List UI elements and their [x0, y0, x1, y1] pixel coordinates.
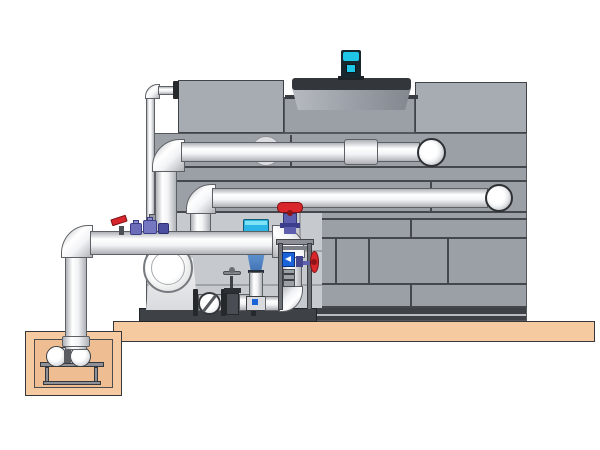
flow-indicator-arrow	[285, 256, 291, 262]
side-valve-block	[296, 256, 303, 267]
tower-seam-h4	[322, 218, 527, 220]
fan-motor-core	[346, 64, 356, 73]
dosing-pump-2	[143, 220, 157, 234]
pump-suction-ring	[151, 251, 185, 285]
fan-motor-cap	[343, 52, 359, 61]
tower-top-left-panel	[178, 80, 284, 133]
sump-pipe-sleeve	[62, 336, 90, 347]
sump-stand-leg-left	[45, 367, 49, 382]
tower-seam-v3	[410, 219, 412, 237]
tower-seam-v5	[368, 238, 370, 283]
lever-valve-handle	[110, 215, 127, 227]
makeup-pipe-flange	[173, 81, 179, 99]
tower-seam-v4	[335, 238, 337, 283]
diagram-canvas	[0, 0, 600, 450]
tower-seam-v6	[447, 238, 449, 283]
concrete-slab	[113, 321, 595, 342]
dosing-pump-1	[130, 223, 142, 235]
column-beam-mid	[281, 246, 309, 250]
fan-shroud-bowl	[292, 88, 411, 110]
sump-pump-coupling	[64, 350, 71, 363]
tower-top-right-panel	[415, 82, 527, 133]
gate-valve-body	[226, 293, 239, 315]
distribution-pipe	[212, 188, 488, 208]
manifold-elbow-left	[61, 225, 93, 258]
red-valve-body	[284, 227, 296, 234]
sump-stand-bottom-bar	[43, 381, 101, 385]
suction-manifold	[90, 231, 274, 255]
tower-seam-v7	[410, 284, 412, 306]
return-pipe	[181, 142, 420, 162]
sump-stand-leg-right	[94, 367, 98, 382]
gauge-stack	[283, 269, 295, 287]
gate-valve-hub	[229, 267, 235, 273]
return-pipe-sleeve	[344, 139, 378, 165]
return-pipe-inlet-ring	[417, 138, 446, 167]
gauge-line-2	[284, 279, 294, 281]
side-valve-hub	[311, 259, 317, 265]
strainer-head-highlight	[245, 221, 267, 225]
tower-seam-h6	[322, 283, 527, 285]
makeup-pipe-horizontal	[158, 86, 174, 95]
tower-seam-h1	[146, 166, 527, 168]
dosing-valve	[158, 223, 169, 234]
strainer-drain-tap	[252, 299, 258, 305]
red-valve-hub	[287, 210, 293, 216]
distribution-pipe-inlet-ring	[485, 184, 513, 212]
gauge-line-1	[284, 273, 294, 275]
tower-seam-h5	[322, 237, 527, 239]
strainer-drop-pipe	[249, 272, 263, 299]
lever-valve-body	[119, 226, 124, 235]
tower-seam-h2	[146, 180, 527, 182]
